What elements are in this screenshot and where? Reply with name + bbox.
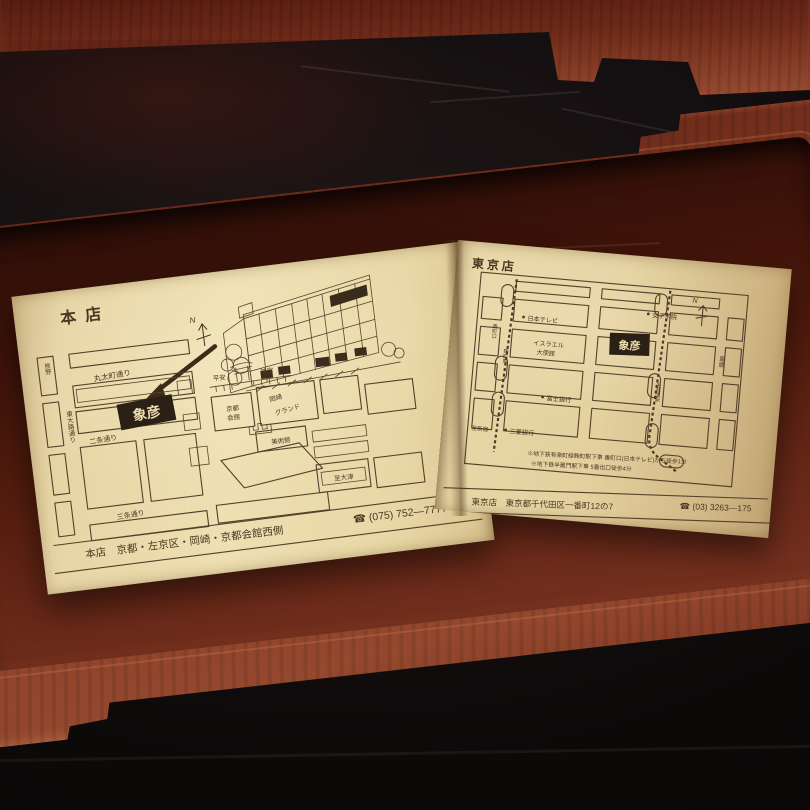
tokyo-page-title: 東京店: [471, 255, 517, 274]
kyoto-street-grid: [37, 313, 427, 545]
tokyo-map: 東京店: [434, 240, 791, 538]
tokyo-phone: ☎ (03) 3263—175: [679, 501, 752, 514]
label-to-shinjuku: 至新宿: [471, 424, 489, 433]
label-hanzomon-sta: 半蔵門駅: [654, 381, 662, 403]
svg-text:象彦: 象彦: [618, 338, 640, 353]
photo-scene: 本店 N: [0, 0, 810, 810]
store-building-illustration: [213, 272, 407, 396]
label-nihon-tv: 日本テレビ: [527, 314, 559, 325]
tokyo-page: 東京店: [434, 240, 791, 538]
compass-n-label-tokyo: N: [692, 298, 699, 305]
label-okazaki-2: グランド: [274, 401, 301, 417]
brochure: 本店 N: [0, 0, 810, 810]
kyoto-page: 本店 N: [11, 242, 494, 595]
label-kumano: 熊野: [43, 362, 52, 376]
label-fuji-bank: 富士銀行: [546, 394, 571, 404]
label-israel-2: 大使館: [536, 348, 555, 358]
store-marker-tokyo: 象彦: [609, 333, 650, 356]
label-museum: 美術館: [271, 435, 292, 446]
label-higashioji: 東大路通り: [64, 409, 76, 444]
label-kaikan-2: 会館: [227, 412, 241, 423]
compass-icon: N: [189, 314, 212, 347]
subway-lines: [487, 276, 698, 472]
kyoto-page-title: 本店: [59, 303, 111, 328]
compass-n-label: N: [189, 316, 196, 326]
kyoto-footer: 本店 京都・左京区・岡崎・京都会館西側 ☎ (075) 752—7777: [52, 491, 482, 573]
svg-text:至大津: 至大津: [334, 471, 355, 482]
label-to-otsu: 至大津: [321, 467, 366, 485]
hatched-blocks: [177, 379, 209, 467]
label-okazaki-1: 岡崎: [268, 391, 284, 404]
tokyo-access-notes: ※地下鉄有楽町線麹町駅下車 番町口(日本テレビ)から徒歩1分 ※地下鉄半蔵門駅下…: [527, 449, 687, 475]
kyoto-map: 本店 N: [11, 242, 494, 595]
label-israel-1: イスラエル: [533, 340, 564, 350]
store-marker-kyoto: 象彦: [116, 394, 176, 430]
label-heian-1: 平安: [212, 372, 226, 383]
label-kaikan-1: 京都: [226, 403, 240, 414]
label-bancho-guchi: 番町口: [490, 323, 497, 340]
tokyo-address: 東京店 東京都千代田区一番町12の7: [471, 497, 613, 512]
label-mitsubishi-bank: 三菱銀行: [509, 427, 534, 437]
compass-icon-tokyo: N: [691, 298, 710, 326]
